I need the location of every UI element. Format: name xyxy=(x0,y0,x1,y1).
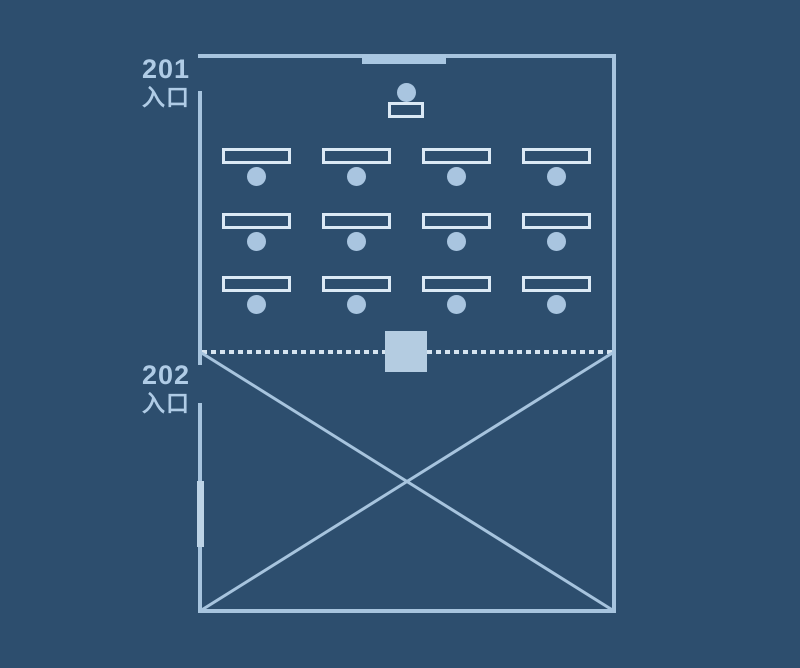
desk-rectangle xyxy=(522,276,591,292)
seat-circle xyxy=(347,232,366,251)
entrance-202-text: 入口 xyxy=(142,392,198,415)
desk-rectangle xyxy=(222,148,291,164)
desk-rectangle xyxy=(222,276,291,292)
seat-circle xyxy=(247,167,266,186)
entrance-label-202: 202 入口 xyxy=(142,362,198,415)
desk-with-seat xyxy=(222,213,291,251)
entrance-202-number: 202 xyxy=(142,362,198,390)
desk-with-seat xyxy=(322,213,391,251)
desk-with-seat xyxy=(422,148,491,186)
desk-rectangle xyxy=(522,213,591,229)
desk-rectangle xyxy=(522,148,591,164)
desk-rectangle xyxy=(322,148,391,164)
desk-rectangle xyxy=(422,276,491,292)
entrance-label-201: 201 入口 xyxy=(142,56,198,109)
seat-circle xyxy=(347,167,366,186)
desk-rectangle xyxy=(422,148,491,164)
desk-rectangle xyxy=(322,213,391,229)
desk-with-seat xyxy=(222,276,291,314)
desk-rectangle xyxy=(422,213,491,229)
diagonal-cross xyxy=(200,352,614,611)
seat-circle xyxy=(447,167,466,186)
seat-circle xyxy=(547,167,566,186)
desk-with-seat xyxy=(322,148,391,186)
desk-rectangle xyxy=(222,213,291,229)
seat-circle xyxy=(447,232,466,251)
desk-rectangle xyxy=(322,276,391,292)
desk-with-seat xyxy=(422,276,491,314)
desk-with-seat xyxy=(522,276,591,314)
desk-with-seat xyxy=(422,213,491,251)
desk-with-seat xyxy=(222,148,291,186)
entrance-201-text: 入口 xyxy=(142,86,198,109)
entrance-201-number: 201 xyxy=(142,56,198,84)
desk-with-seat xyxy=(322,276,391,314)
floor-plan-canvas: 201 入口 202 入口 xyxy=(0,0,800,668)
seat-circle xyxy=(247,295,266,314)
seat-circle xyxy=(447,295,466,314)
desk-with-seat xyxy=(522,148,591,186)
seat-circle xyxy=(547,232,566,251)
seat-circle xyxy=(247,232,266,251)
seat-circle xyxy=(347,295,366,314)
desk-with-seat xyxy=(522,213,591,251)
seat-circle xyxy=(547,295,566,314)
